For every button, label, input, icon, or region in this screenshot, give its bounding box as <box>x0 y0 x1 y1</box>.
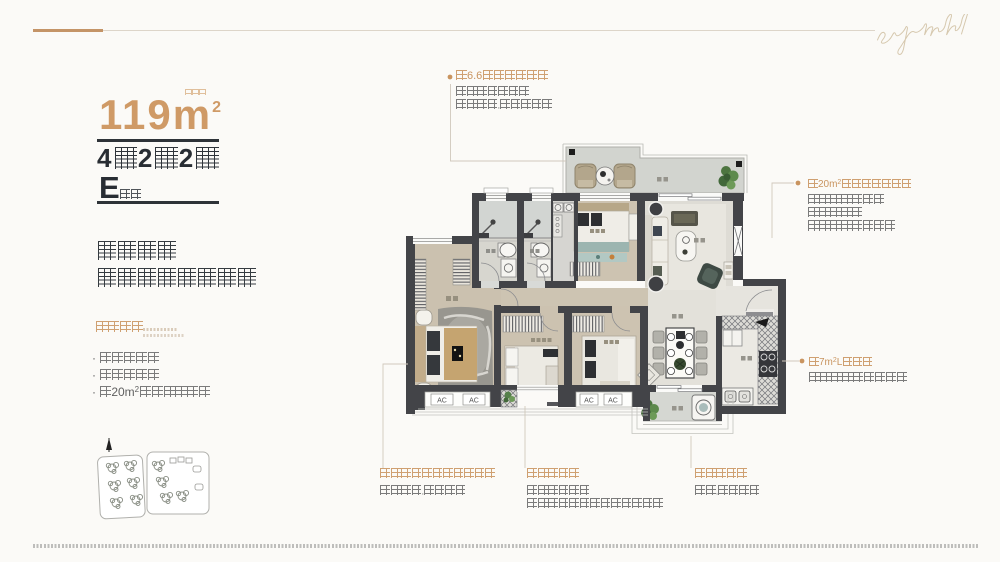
svg-text:AC: AC <box>584 398 594 405</box>
svg-text:AC: AC <box>608 398 618 405</box>
svg-text:AC: AC <box>437 398 447 405</box>
svg-text:AC: AC <box>469 398 479 405</box>
